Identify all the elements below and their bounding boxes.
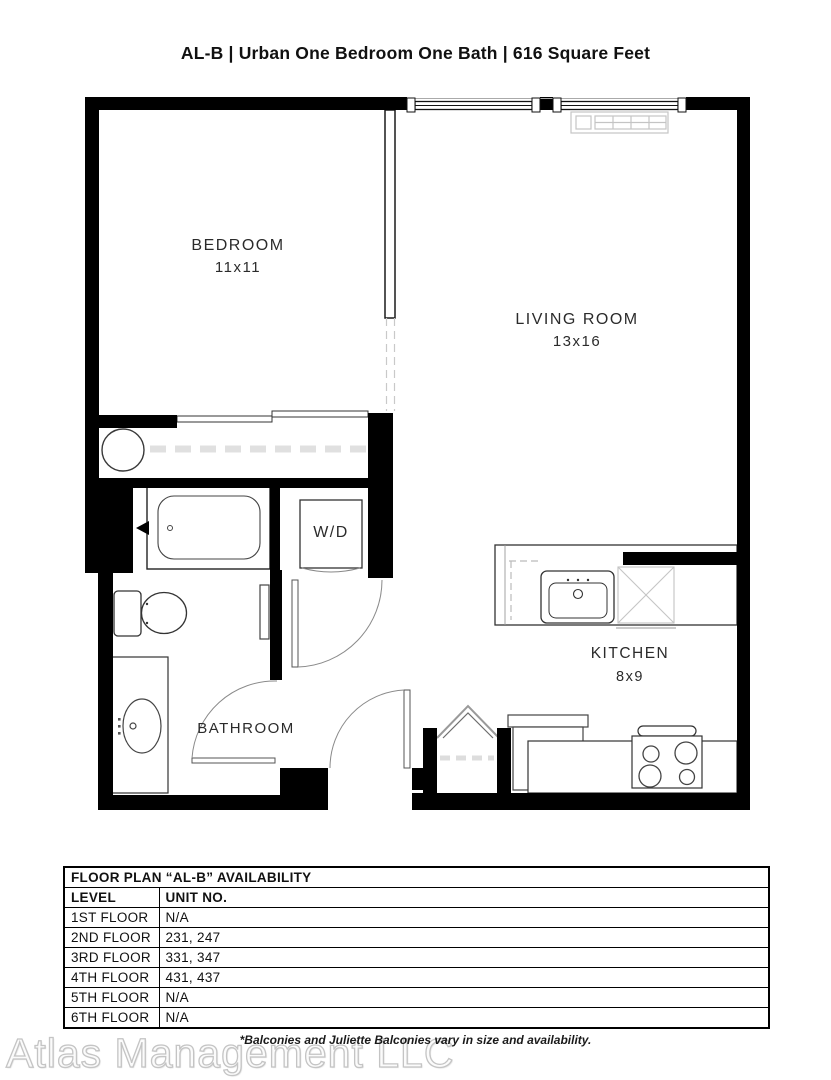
- living-room-dims: 13x16: [553, 333, 601, 350]
- vanity-sink: [112, 657, 168, 793]
- balcony-footnote: *Balconies and Juliette Balconies vary i…: [0, 1033, 831, 1047]
- kitchen-dims: 8x9: [616, 669, 644, 685]
- column-header-level: LEVEL: [64, 888, 159, 908]
- units-cell: N/A: [159, 988, 769, 1008]
- walls: [85, 97, 750, 810]
- level-cell: 3RD FLOOR: [64, 948, 159, 968]
- tub-faucet-icon: [136, 521, 149, 535]
- table-row: 3RD FLOOR 331, 347: [64, 948, 769, 968]
- sliding-closet-doors: [177, 411, 368, 422]
- table-row: 6TH FLOOR N/A: [64, 1008, 769, 1029]
- column-header-unit-no: UNIT NO.: [159, 888, 769, 908]
- units-cell: 331, 347: [159, 948, 769, 968]
- level-cell: 1ST FLOOR: [64, 908, 159, 928]
- baseboard-heater: [571, 112, 668, 133]
- level-cell: 6TH FLOOR: [64, 1008, 159, 1029]
- table-row: 5TH FLOOR N/A: [64, 988, 769, 1008]
- bathtub: [136, 486, 270, 569]
- kitchen-label: KITCHEN: [591, 645, 670, 662]
- pocket-door-panel: [260, 585, 269, 639]
- bedroom-label: BEDROOM: [191, 237, 284, 254]
- closet-circle: [102, 429, 144, 471]
- units-cell: 431, 437: [159, 968, 769, 988]
- floor-plan-document: AL-B | Urban One Bedroom One Bath | 616 …: [0, 0, 831, 1080]
- availability-table: FLOOR PLAN “AL-B” AVAILABILITY LEVEL UNI…: [63, 866, 770, 1029]
- bedroom-dims: 11x11: [215, 259, 261, 276]
- level-cell: 4TH FLOOR: [64, 968, 159, 988]
- dishwasher: [616, 567, 676, 628]
- table-title: FLOOR PLAN “AL-B” AVAILABILITY: [64, 867, 769, 888]
- level-cell: 5TH FLOOR: [64, 988, 159, 1008]
- level-cell: 2ND FLOOR: [64, 928, 159, 948]
- toilet: [114, 591, 187, 636]
- living-room-label: LIVING ROOM: [515, 311, 638, 328]
- table-row: 4TH FLOOR 431, 437: [64, 968, 769, 988]
- kitchen-sink: [541, 571, 614, 623]
- floor-plan-drawing: BEDROOM 11x11 LIVING ROOM 13x16 KITCHEN …: [0, 0, 831, 860]
- units-cell: N/A: [159, 1008, 769, 1029]
- units-cell: 231, 247: [159, 928, 769, 948]
- wd-door-swing: [292, 580, 382, 667]
- bifold-closet-doors: [437, 706, 499, 758]
- table-row: 2ND FLOOR 231, 247: [64, 928, 769, 948]
- table-row: 1ST FLOOR N/A: [64, 908, 769, 928]
- bathroom-label: BATHROOM: [197, 720, 295, 737]
- units-cell: N/A: [159, 908, 769, 928]
- bedroom-partition-wall: [385, 110, 395, 411]
- wd-label: W/D: [313, 524, 349, 541]
- entry-door-swing: [330, 690, 410, 768]
